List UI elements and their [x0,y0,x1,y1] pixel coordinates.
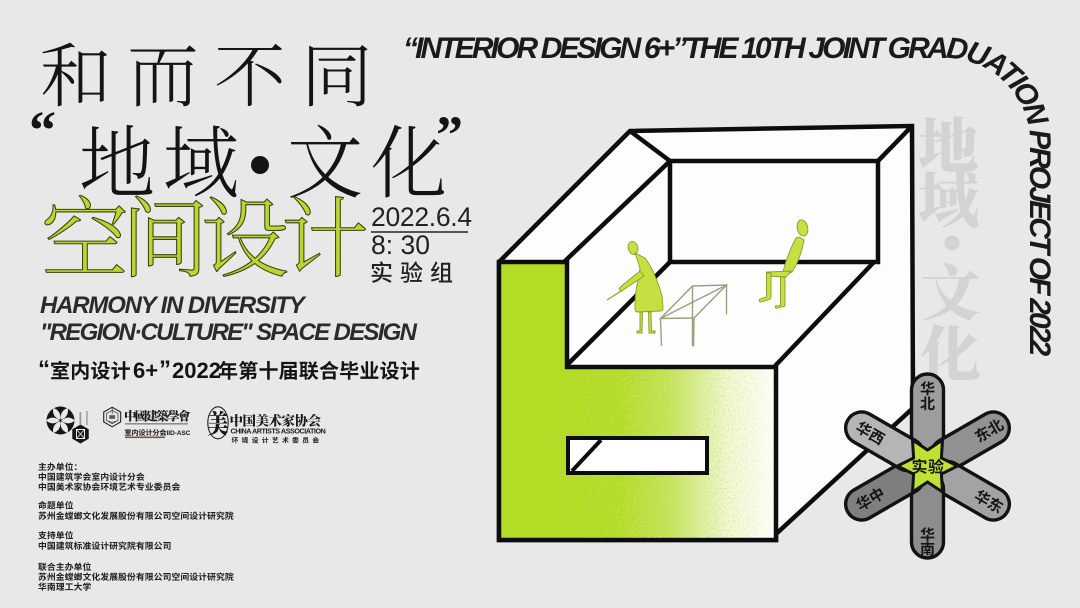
svg-text:2022: 2022 [172,358,221,383]
svg-text:"REGION·CULTURE" SPACE DESIGN: "REGION·CULTURE" SPACE DESIGN [40,319,418,346]
svg-text:CHINA ARTISTS ASSOCIATION: CHINA ARTISTS ASSOCIATION [231,426,326,435]
svg-text:8: 30: 8: 30 [371,230,430,260]
svg-text:2022.6.4: 2022.6.4 [371,202,472,232]
svg-text:IID-ASC: IID-ASC [167,430,191,437]
svg-text:“: “ [38,356,50,383]
svg-text:HARMONY IN DIVERSITY: HARMONY IN DIVERSITY [40,292,307,319]
svg-text:6+: 6+ [133,358,158,383]
svg-text:“: “ [29,100,56,160]
svg-text:”: ” [436,105,463,165]
svg-text:”: ” [159,356,171,383]
